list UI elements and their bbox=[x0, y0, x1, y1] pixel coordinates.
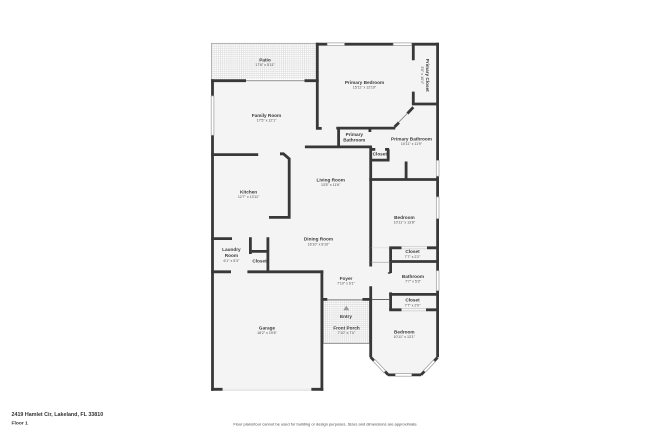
svg-text:Patio: Patio bbox=[259, 57, 271, 62]
svg-text:17'5" x 12'1": 17'5" x 12'1" bbox=[257, 119, 277, 123]
svg-text:7'7" x 2'0": 7'7" x 2'0" bbox=[405, 303, 421, 307]
svg-text:Primary Bedroom: Primary Bedroom bbox=[345, 80, 384, 85]
svg-text:6'1" x 5'3": 6'1" x 5'3" bbox=[224, 259, 240, 263]
svg-text:7'7" x 5'3": 7'7" x 5'3" bbox=[405, 279, 421, 283]
svg-text:Closet: Closet bbox=[405, 249, 420, 254]
svg-text:7'10" x 7'0": 7'10" x 7'0" bbox=[338, 331, 356, 335]
svg-text:Primary Bathroom: Primary Bathroom bbox=[391, 137, 432, 142]
svg-text:Garage: Garage bbox=[259, 326, 276, 331]
svg-text:Foyer: Foyer bbox=[340, 276, 353, 281]
svg-text:Floor 1: Floor 1 bbox=[12, 421, 29, 427]
svg-text:Front Porch: Front Porch bbox=[333, 325, 360, 330]
svg-text:10'11" x 13'1": 10'11" x 13'1" bbox=[394, 335, 416, 339]
svg-text:18'2" x 19'6": 18'2" x 19'6" bbox=[257, 331, 277, 335]
svg-text:Floor plans/tour cannot be use: Floor plans/tour cannot be used for buil… bbox=[233, 421, 417, 426]
svg-text:3'6" x 10'4": 3'6" x 10'4" bbox=[420, 66, 424, 84]
svg-text:7'7" x 2'2": 7'7" x 2'2" bbox=[405, 255, 421, 259]
svg-text:Living Room: Living Room bbox=[317, 177, 345, 182]
svg-text:Closet: Closet bbox=[252, 258, 267, 263]
svg-text:Bedroom: Bedroom bbox=[394, 330, 415, 335]
svg-text:7'10" x 6'1": 7'10" x 6'1" bbox=[337, 282, 355, 286]
svg-text:Laundry: Laundry bbox=[222, 247, 241, 252]
svg-text:Dining Room: Dining Room bbox=[304, 236, 333, 241]
svg-text:10'11" x 11'9": 10'11" x 11'9" bbox=[401, 142, 423, 146]
svg-text:Bathroom: Bathroom bbox=[343, 137, 365, 142]
svg-text:Room: Room bbox=[225, 253, 238, 258]
svg-text:2419 Hamlet Cir, Lakeland, FL: 2419 Hamlet Cir, Lakeland, FL 33810 bbox=[12, 412, 104, 418]
svg-text:Closet: Closet bbox=[373, 152, 388, 157]
svg-text:17'6" x 5'11": 17'6" x 5'11" bbox=[255, 63, 275, 67]
svg-text:12'7" x 13'11": 12'7" x 13'11" bbox=[238, 195, 260, 199]
svg-text:15'11" x 12'10": 15'11" x 12'10" bbox=[353, 86, 377, 90]
svg-text:Kitchen: Kitchen bbox=[240, 189, 257, 194]
svg-text:Family Room: Family Room bbox=[252, 113, 281, 118]
svg-text:16'10" x 8'10": 16'10" x 8'10" bbox=[308, 243, 330, 247]
svg-text:Bedroom: Bedroom bbox=[394, 215, 415, 220]
svg-text:Primary Closet: Primary Closet bbox=[425, 59, 430, 93]
svg-text:Closet: Closet bbox=[405, 298, 420, 303]
svg-text:10'11" x 13'8": 10'11" x 13'8" bbox=[394, 221, 416, 225]
svg-text:Primary: Primary bbox=[346, 132, 364, 137]
svg-text:Entry: Entry bbox=[340, 314, 352, 319]
svg-text:Bathroom: Bathroom bbox=[402, 274, 424, 279]
svg-text:13'5" x 11'6": 13'5" x 11'6" bbox=[321, 183, 341, 187]
